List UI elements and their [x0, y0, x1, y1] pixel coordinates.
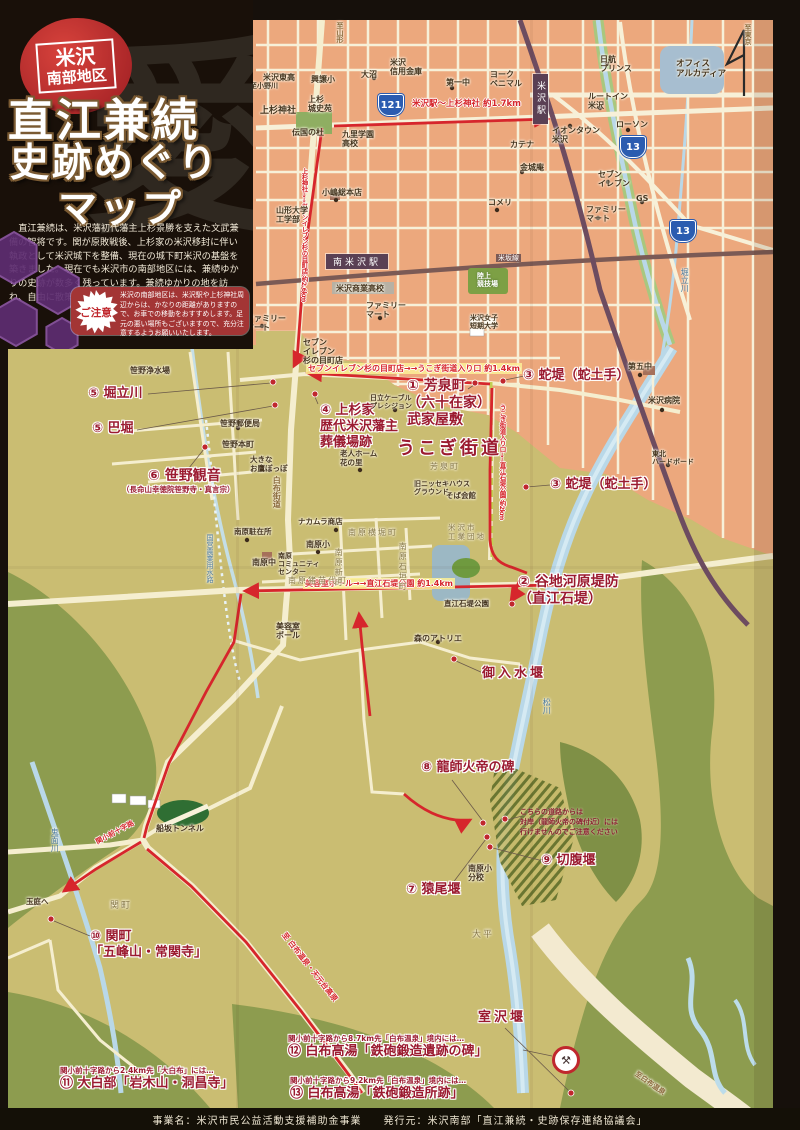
site-label: ① 芳泉町 （六十在家） 武家屋敷	[407, 378, 491, 429]
site-label: ⑤ 堀立川	[88, 386, 143, 402]
poi-label: ナカムラ商店	[298, 518, 343, 527]
poi-label: 南原 コミュニティ センター	[278, 552, 320, 576]
poi-label: 南原石垣町	[398, 542, 407, 592]
site-label: ⑩ 関町 「五峰山・常関寺」	[90, 929, 207, 961]
route-distance-label: 米沢駅～上杉神社 約1.7km	[412, 97, 521, 109]
footer-credit-bar: 事業名：米沢市民公益活動支援補助金事業 発行元：米沢南部「直江兼続・史跡保存連絡…	[0, 1108, 800, 1130]
poi-label: 大沼	[361, 70, 377, 79]
site-label: ⑨ 切腹堰	[541, 853, 596, 869]
poi-label: 南原猪苗代町	[288, 576, 348, 585]
poi-label: 伝国の杜	[292, 128, 324, 137]
poi-label: 南原横堀町	[348, 528, 398, 537]
poi-label: 米沢商業高校	[336, 284, 384, 293]
poi-label: 松川	[542, 698, 551, 714]
poi-label: 芳泉町	[430, 462, 460, 471]
poi-label: 至東京	[744, 24, 752, 45]
poi-label: 第一中	[446, 78, 470, 87]
site-label: 関小前十字路から8.7km先「白布温泉」境内には…⑫ 白布高湯「鉄砲鍛造遺跡の碑…	[288, 1034, 488, 1060]
crossed-hammers-icon: ⚒	[552, 1046, 580, 1074]
poi-label: 至白布温泉	[633, 1070, 666, 1097]
poi-label: 第五中	[628, 362, 652, 371]
route-distance-label: 至 白布温泉・天元台高原	[279, 930, 340, 1004]
route-number-badge: 121	[378, 94, 404, 116]
route-number-badge: 13	[670, 220, 696, 242]
site-label: ⑤ 巴堀	[92, 421, 134, 437]
poi-label: 南原小	[306, 540, 330, 549]
warning-note: こちらの道路からは 対岸（龍師火帝の碑付近）には 行けませんのでご注意ください	[520, 808, 618, 837]
poi-label: 米坂線	[496, 254, 521, 262]
poi-label: そば会館	[446, 492, 476, 501]
poi-label: 山形大学 工学部	[276, 206, 308, 224]
poi-label: 至小野川	[250, 82, 278, 90]
poi-label: 日航 プリンス	[600, 55, 632, 73]
poi-label: 白布街道	[272, 476, 281, 508]
poi-label: ヨーク ベニマル	[490, 70, 522, 88]
poi-label: カテナ	[510, 140, 534, 149]
poi-label: 南原中	[252, 558, 276, 567]
notice-box: ご注意 米沢の南部地区は、米沢駅や上杉神社周辺からは、かなりの距離がありますので…	[71, 287, 249, 335]
poi-label: セブン イレブン	[598, 170, 630, 188]
route-distance-label: うこぎ街道入り口→→直江石堤公園 約2km	[497, 404, 507, 520]
poi-label: 日立ケーブル プレシジョン	[370, 394, 412, 410]
poi-label: 米沢 信用金庫	[390, 58, 422, 76]
route-distance-label: 上杉神社→→セブンイレブン杉の目町店 約2.6km	[299, 168, 309, 302]
site-label: ④ 上杉家 歴代米沢藩主 葬儀場跡	[320, 403, 398, 451]
poi-label: GS	[636, 194, 648, 203]
poi-label: 大平	[472, 930, 494, 940]
poi-label: ファミリー マート	[366, 301, 406, 319]
poi-label: 南原小 分校	[468, 864, 492, 882]
site-label: 御入水堰	[482, 666, 546, 682]
poi-label: 米沢市 工業団地	[448, 524, 486, 541]
site-label: ⑧ 龍師火帝の碑	[421, 760, 515, 776]
poi-label: 至山形	[336, 22, 344, 43]
site-label: ② 谷地河原堤防 （直江石堤）	[518, 574, 619, 608]
notice-text: 米沢の南部地区は、米沢駅や上杉神社周辺からは、かなりの距離がありますので、お車で…	[120, 287, 249, 339]
route-number-badge: 13	[620, 136, 646, 158]
poi-label: 小嶋総本店	[322, 188, 362, 197]
poi-label: 鬼面川	[50, 828, 59, 852]
poi-label: 玉庭へ	[26, 898, 49, 907]
poi-label: 大きな お鷹ぽっぽ	[250, 456, 288, 473]
site-label: 関小前十字路から2.4km先「大白布」には…⑪ 大白部「岩木山・洞昌寺」	[60, 1066, 234, 1092]
site-label: ③ 蛇堤（蛇土手）	[523, 368, 630, 384]
poi-label: 米沢女子 短期大学	[470, 314, 498, 330]
site-label: 室沢堰	[478, 1010, 526, 1026]
poi-label: 上杉 城史苑	[308, 95, 332, 113]
poi-label: ローソン	[616, 120, 648, 129]
poi-label: ファミリー マート	[586, 205, 626, 223]
site-label: ⑦ 猿尾堰	[406, 882, 461, 898]
poi-label: 興譲小	[311, 75, 335, 84]
poi-label: 米沢東高	[263, 73, 295, 82]
site-label: 関小前十字路から9.2km先「白布温泉」境内には…⑬ 白布高湯「鉄砲鍛造所跡」	[290, 1076, 466, 1102]
poi-label: 船坂トンネル	[156, 824, 204, 833]
poi-label: 美容室 ポール	[276, 622, 300, 640]
poi-label: 金城庵	[520, 163, 544, 172]
poi-label: ルートイン 米沢	[588, 92, 628, 110]
site-label: ⑥ 笹野観音（長命山幸徳院笹野寺・真言宗）	[148, 468, 235, 494]
poi-label: 森のアトリエ	[414, 634, 462, 643]
site-label: ③ 蛇堤（蛇土手）	[550, 477, 657, 493]
poi-label: 九里学園 高校	[342, 130, 374, 148]
poi-label: イオンタウン 米沢	[552, 126, 600, 144]
poi-label: 陸上 競技場	[477, 272, 498, 288]
poi-label: オフィス アルカディア	[676, 60, 726, 80]
poi-label: 米沢病院	[648, 396, 680, 405]
poi-label: 堀立川	[680, 268, 689, 292]
poi-label: 東北 ハードボード	[652, 450, 694, 466]
poi-label: 老人ホーム 花の里	[340, 450, 377, 467]
poi-label: 上杉神社	[260, 106, 296, 116]
station-label: 米沢駅	[533, 74, 548, 124]
poi-label: 笹野郵便局	[220, 419, 260, 428]
poi-label: 国営農業用水路	[206, 534, 214, 583]
poi-label: 笹野本町	[222, 440, 254, 449]
station-label: 南米沢駅	[326, 254, 388, 269]
poi-label: コメリ	[488, 198, 512, 207]
notice-starburst-icon: ご注意	[74, 290, 118, 334]
poi-label: 直江石堤公園	[444, 600, 489, 609]
title-panel: 愛 米沢 南部地区 直江兼続 史跡めぐり マップ 直江兼続は、米沢藩初代藩主上杉…	[0, 0, 253, 349]
poi-label: 南原駐在所	[234, 528, 272, 537]
poi-label: 笹野浄水場	[130, 366, 170, 375]
route-distance-label: 関小前十字路	[94, 818, 136, 847]
poi-label: セブン イレブン 杉の目町店	[303, 338, 343, 366]
poi-label: 関町	[110, 901, 132, 911]
site-label: うこぎ街道	[397, 438, 502, 460]
